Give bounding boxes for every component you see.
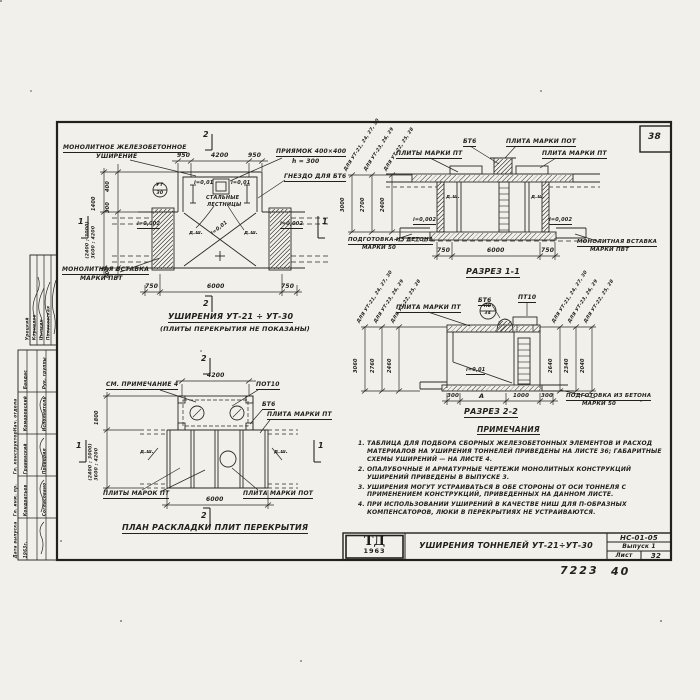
plan2-dim-left-2400-3000: (2400 ; 3000) [89,443,94,480]
footer-num: 40 [611,566,630,577]
sec2-marker-circle-bottom: 34 [485,312,491,316]
plan2-section-mark-2-top: 2 [201,355,207,363]
plan-label-ladders-line2: лестницы [207,203,241,208]
sec2-chain-right2-value: 2340 [565,358,570,373]
stamp-visa-1: Урецкий [27,317,31,340]
plan-dim-bottom-750-left: 750 [145,284,158,290]
sec1-pillar-hatch [494,159,512,174]
plan-dim-top-950-left: 950 [177,153,190,159]
sec1-dim-6000: 6000 [487,248,505,254]
sec2-slab-hatch [447,326,540,332]
notes-block: 1. Таблица для подбора сборных железобет… [358,440,662,519]
plan-dim-bottom-750-right: 750 [281,284,294,290]
stamp-visa-2: Корнилов [34,314,38,340]
plan2-joint-right: д.ш. [274,450,288,455]
sec1-slope-right: i=0,002 [549,218,572,225]
td-logo-year: 1963 [346,548,403,555]
plan2-dim-left-3600-4200: 3600 ; 4200 [95,448,100,481]
sec2-slope: i=0,01 [466,368,485,375]
sec2-dim-300-left: 300 [447,394,459,400]
sec1-chain3-value: 2400 [381,197,386,212]
plan-marker-circle-bottom: 30 [157,192,164,197]
linework-svg [0,0,700,700]
plan-section-mark-2-bottom: 2 [203,300,209,308]
plan-dim-top-950-right: 950 [248,153,261,159]
stamp-name-mgmt-3: Гравинский [25,443,29,474]
stamp-role-mgmt-3: Гл. инж. пр. [15,484,19,516]
sec1-dim-750-right: 750 [541,248,554,254]
stamp-name-mgmt-1: Бандас [25,370,29,389]
plan-wall-left-hatch [153,209,173,269]
titleblock-doc-number: НС-01-05 [607,535,671,542]
sec2-dim-300-right: 300 [541,394,553,400]
plan2-label-pt: Плита марки ПТ [267,412,332,420]
sec1-joint-right: д.ш. [531,195,545,200]
plan-slope-edge-right: i=0,002 [280,222,303,229]
plan2-dim-left-1800: 1800 [95,410,100,425]
plan-dim-left-400: 400 [106,181,111,192]
titleblock-sheet-word: Лист [607,553,641,559]
page-number-box: 38 [648,133,661,142]
plan2-section-mark-2-bottom: 2 [201,512,207,520]
plan2-label-bt6: БТ6 [262,402,275,410]
plan2-dim-top-4200: 4200 [207,373,225,379]
plan2-joint-left: д.ш. [140,450,154,455]
titleblock-title: Уширения тоннелей УТ-21÷УТ-30 [405,542,607,550]
stamp-name-mgmt-2: Комаровский [25,396,29,431]
plan2-caption: План раскладки плит перекрытия [122,524,308,534]
stamp-role-team-4: Согласовано [44,483,48,517]
stamp-role-mgmt-1: Нач. отдела [15,399,19,432]
sec2-bt6-hatch [498,321,512,332]
sec2-chain-right1-value: 2640 [549,358,554,373]
sec2-chain-left2-value: 2760 [371,358,376,373]
note-item-3: 3. Уширения могут устраиваться в обе сто… [358,484,662,500]
sec2-dim-1000: 1000 [513,394,529,400]
plan-label-insert-line2: марки ПВТ [80,276,123,282]
notes-title: Примечания [477,426,540,435]
sec1-wall-left-hatch [437,182,444,232]
note-item-2: 2. Опалубочные и арматурные чертежи моно… [358,466,662,482]
plan2-label-pot: Плита марки ПОТ [243,491,313,499]
sec1-caption: Разрез 1-1 [466,268,520,278]
sec1-label-pt-left: Плиты марки ПТ [396,151,462,159]
note-item-4: 4. При использовании уширений в качестве… [358,501,662,517]
footer-code: 7223 [560,565,599,576]
stamp-name-mgmt-5: 1963г. [25,541,29,558]
sec2-chain-left3-value: 2460 [388,358,393,373]
titleblock-issue: Выпуск 1 [607,544,671,550]
sec2-floor-hatch [442,386,542,391]
sec1-floor-hatch [430,233,556,240]
sec1-slope-left: i=0,002 [413,218,436,225]
stamp-role-mgmt-4: Дата выпуска [15,522,19,559]
plan-dim-left-3600-4200: 3600 ; 4200 [92,226,97,259]
plan-slope-pit-left: i=0,01 [194,181,213,186]
sec1-label-pot: Плита марки ПОТ [506,139,576,147]
stamp-role-team-1: Рук. группы [44,357,48,389]
sec1-slab-hatch [412,175,573,182]
plan-section-mark-1-right: 1 [322,218,328,226]
plan2-label-pts: Плиты марок ПТ [103,491,169,499]
td-logo: ТД 1963 [346,535,403,555]
plan-label-socket: Гнездо для БТ6 [284,174,346,182]
plan-dim-bottom-6000: 6000 [207,284,225,290]
plan-dim-left-1400: 1400 [92,196,97,211]
plan-dim-left-600: 600 [106,267,111,278]
sec1-dim-750-left: 750 [437,248,450,254]
sec1-label-prep-line2: марки 50 [362,246,396,252]
plan-dim-top-4200: 4200 [211,153,229,159]
plan-subtitle: (Плиты перекрытия не показаны) [160,326,310,333]
plan2-dim-bottom-6000: 6000 [206,497,224,503]
sec2-chain-left1-value: 3060 [354,358,359,373]
plan2-label-note: См. примечание 4 [106,382,178,390]
titleblock-sheet-number: 32 [641,553,671,560]
plan2-label-pot10: ПОТ10 [256,382,280,390]
plan-label-pit-line2: h = 300 [292,159,319,165]
plan-dim-left-2400-3000: (2400 ; 3000) [86,221,91,258]
sec1-label-insert-line2: марки ПВТ [590,248,629,254]
sec2-label-pt10: ПТ10 [518,295,536,303]
sec1-joint-left: д.ш. [446,195,460,200]
sec2-caption: Разрез 2-2 [464,408,518,418]
stamp-name-mgmt-4: Кондратьев [25,485,29,517]
sec1-chain1-value: 3000 [341,197,346,212]
plan-slope-pit-right: i=0,01 [231,181,250,186]
plan-joint-right: д.ш. [244,231,258,236]
drawing-sheet: Монолитное железобетонное уширение Приям… [0,0,700,700]
plan-label-monolith-line2: уширение [96,154,137,160]
plan-dim-left-300: 300 [106,202,111,213]
plan-marker-circle-top: УТ [156,184,163,189]
sec2-label-prep-line2: марки 50 [582,402,616,408]
stamp-visa-3: Цыпкин [41,319,45,340]
sec1-chain2-value: 2700 [361,197,366,212]
sec1-label-pt-right: Плита марки ПТ [542,151,607,159]
sec1-label-bt6: БТ6 [463,139,476,147]
sec2-chain-right3-value: 2040 [581,358,586,373]
stamp-role-team-2: Исполнитель [44,397,48,432]
stamp-role-team-3: Проверил [44,448,48,474]
sec1-wall-right-hatch [542,182,549,232]
plan-wall-right-hatch [270,209,290,269]
plan-section-mark-1-left: 1 [78,218,84,226]
plan-slope-edge-left: i=0,002 [137,222,160,229]
plan2-section-mark-1-left: 1 [76,442,82,450]
stamp-visa-4: Поляковская [48,306,52,340]
plan2-section-mark-1-right: 1 [318,442,324,450]
plan-joint-left: д.ш. [189,231,203,236]
plan-label-monolith-line1: Монолитное железобетонное [63,145,187,153]
plan-title: Уширения УТ-21 ÷ УТ-30 [168,313,293,323]
sec2-marker-circle-top: ПВ [484,305,491,309]
plan-section-mark-2-top: 2 [203,131,209,139]
stamp-role-mgmt-2: Гл. конструктор [15,431,19,474]
plan-label-pit-line1: Приямок 400×400 [276,149,346,157]
note-item-1: 1. Таблица для подбора сборных железобет… [358,440,662,464]
sec2-dim-A: А [479,393,484,400]
plan-label-ladders-line1: Стальные [206,196,239,201]
